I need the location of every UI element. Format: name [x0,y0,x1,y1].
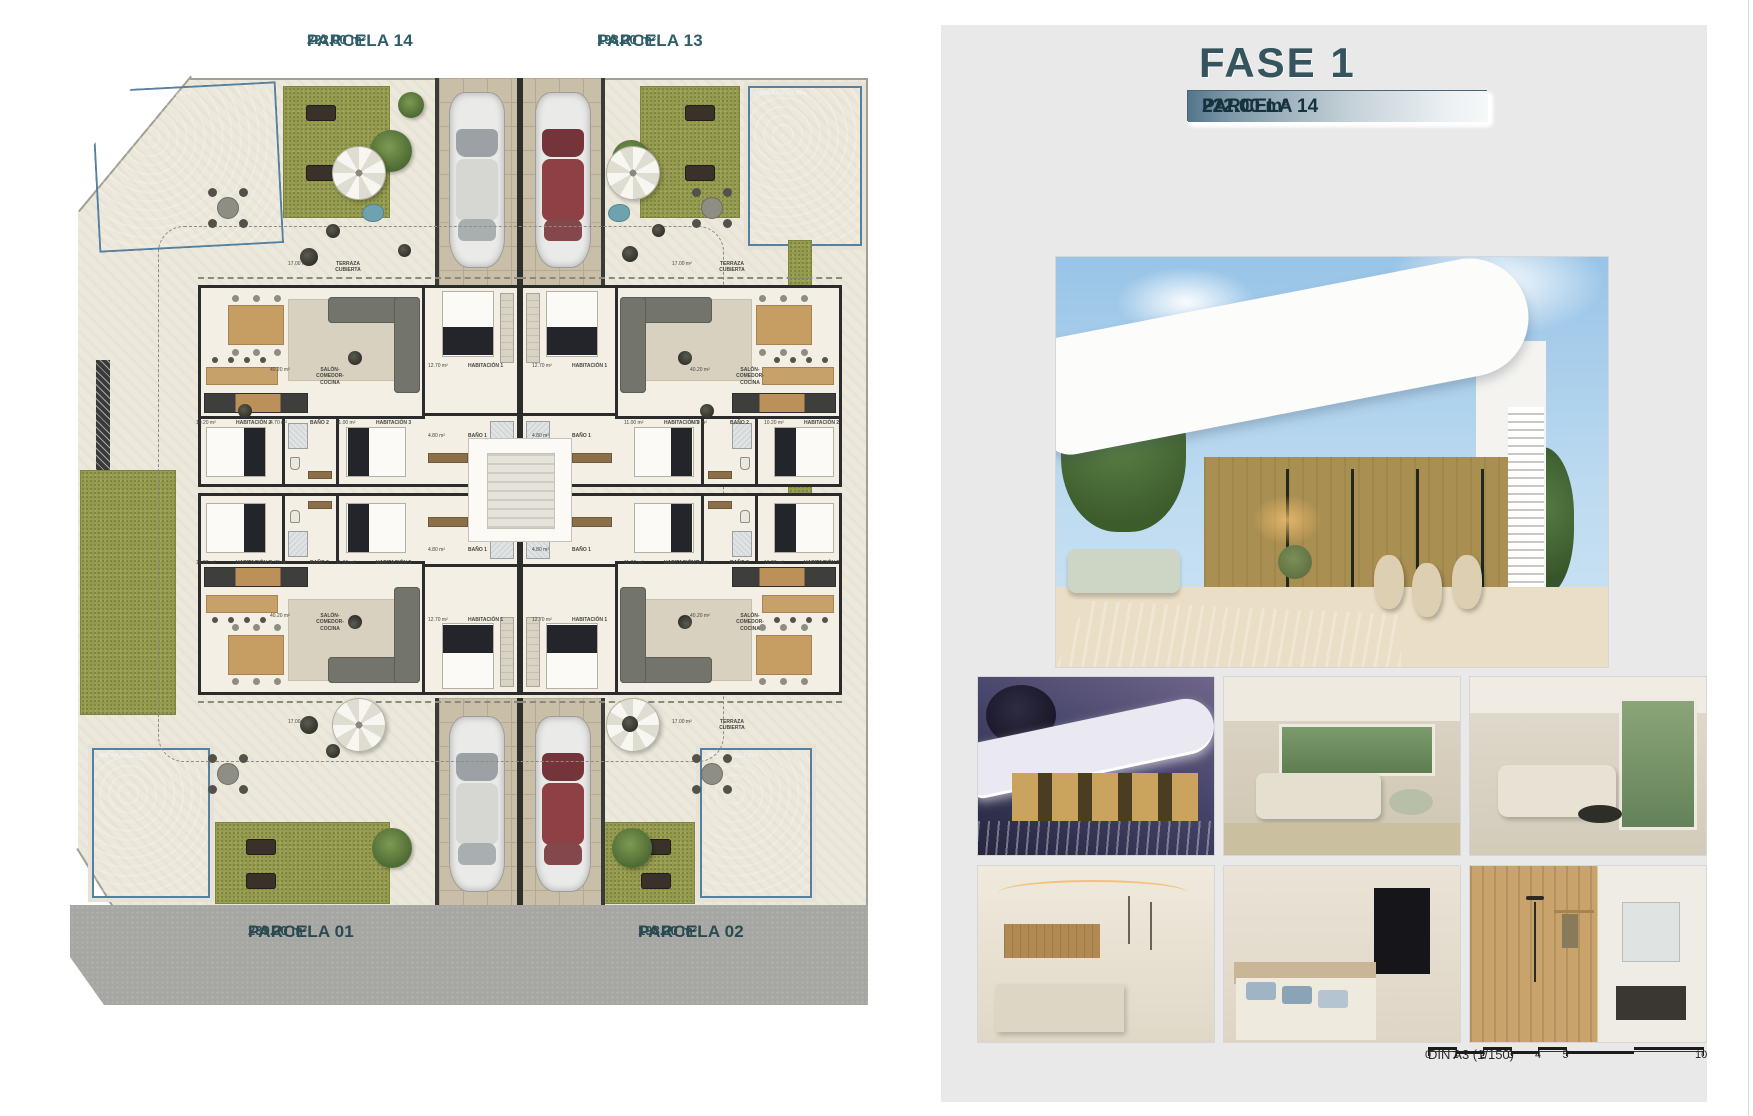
sofa [394,587,420,683]
bed-blanket [443,625,493,653]
plant [678,351,692,365]
dining-table [228,635,284,675]
info-panel: FASE 1 PARCELA 01239.20 m²PARCELA 02198.… [941,25,1707,1102]
sofa [620,587,646,683]
wicker-chair [1374,555,1404,609]
wardrobe [500,617,514,687]
bath2-wc [290,457,300,470]
dining-table [228,305,284,345]
bed-blanket [547,327,597,355]
party-wall [517,287,523,438]
wardrobe [526,293,540,363]
bed-blanket [348,504,369,552]
bath2-vanity [308,471,332,479]
scale-numbers: 01234510 [1428,1049,1703,1063]
wall [422,564,520,567]
brochure-page: PISCINA 4.60 x 2.30 m PISCINA 4.60 x 2.3… [0,0,1753,1116]
plant [326,744,340,758]
bed-blanket [547,625,597,653]
kitchen-bar [762,367,834,385]
bed-blanket [671,504,692,552]
plant [300,716,318,734]
wall [336,419,339,487]
exterior-stairs [1508,407,1544,597]
kitchen-counter [204,567,308,587]
outdoor-dining-set [206,186,250,230]
bath1-vanity [428,453,468,463]
kitchen-counter [732,567,836,587]
dining-chairs [232,678,239,685]
plant [238,404,252,418]
wall [701,419,704,487]
outdoor-dining-set [690,186,734,230]
plant [622,246,638,262]
wall [282,493,285,561]
wall [615,416,839,419]
wall [336,493,339,561]
bed-blanket [775,428,796,476]
bar-stools [822,357,828,363]
garden-sofa [1068,549,1180,593]
bed-blanket [244,428,265,476]
wall [701,493,704,561]
wall [422,413,520,416]
plant [326,224,340,238]
kitchen-bar [762,595,834,613]
bath2-wc [740,457,750,470]
wall [615,564,618,692]
kitchen-counter [732,393,836,413]
bath2-wc [740,510,750,523]
bed-blanket [671,428,692,476]
wall [755,493,758,561]
kitchen-counter [204,393,308,413]
bar-stools [212,357,218,363]
photo-villa-exterior-night [978,677,1214,855]
plant [622,716,638,732]
dwelling-unit-tr: TERRAZA CUBIERTA17.00 m² SALÓN-COMEDOR-C… [520,255,870,490]
parasol [332,146,386,200]
wardrobe [500,293,514,363]
dining-chairs [801,678,808,685]
street [70,905,868,1005]
central-court [468,438,572,542]
bath2-shower [732,423,752,449]
wall [755,419,758,487]
wall [520,413,618,416]
photo-living-room-terrace [1224,677,1460,855]
terrace-dashed-line [520,277,842,279]
bed-blanket [348,428,369,476]
bed-blanket [244,504,265,552]
bath2-vanity [308,501,332,509]
photo-kitchen-dining [978,866,1214,1042]
outdoor-dining-set [206,752,250,796]
bath1-vanity [428,517,468,527]
photo-bathroom-shower [1470,866,1706,1042]
wicker-chair [1452,555,1482,609]
wall [520,564,618,567]
bath2-vanity [708,471,732,479]
bar-stools [822,617,828,623]
phase-title: FASE 1 [1199,39,1356,87]
floor-plan-sheet: PISCINA 4.60 x 2.30 m PISCINA 4.60 x 2.3… [0,0,941,1116]
photo-villa-exterior-day [1056,257,1608,667]
dining-chairs [232,295,239,302]
party-wall [517,542,523,693]
parcel-row[interactable]: PARCELA 14222.00 m² [1188,91,1488,122]
plant [652,224,665,237]
bath1-vanity [572,517,612,527]
sofa [620,297,646,393]
wall [201,416,425,419]
sofa [394,297,420,393]
plant [700,404,714,418]
bath1-vanity [572,453,612,463]
terrace-dashed-line [198,277,520,279]
dining-table [756,305,812,345]
dining-chairs [801,295,808,302]
bed-blanket [775,504,796,552]
photo-living-room-sofa [1470,677,1706,855]
kitchen-bar [206,367,278,385]
wardrobe [526,617,540,687]
bath2-shower [288,423,308,449]
dining-table [756,635,812,675]
water-feature [608,204,630,222]
terrace-dashed-line [520,701,842,703]
photo-bedroom [1224,866,1460,1042]
parcel-row-area: 222.00 m² [1202,96,1289,118]
wall [282,419,285,487]
wicker-chair [1412,563,1442,617]
bar-stools [212,617,218,623]
outdoor-dining-set [690,752,734,796]
bed-blanket [443,327,493,355]
wall [422,288,425,416]
parasol [606,146,660,200]
dwelling-unit-br: TERRAZA CUBIERTA17.00 m² SALÓN-COMEDOR-C… [520,490,870,725]
potted-plant [1278,545,1312,579]
bath2-shower [288,531,308,557]
bath2-shower [732,531,752,557]
water-feature [362,204,384,222]
parasol [332,698,386,752]
plant [348,615,362,629]
plant [348,351,362,365]
kitchen-bar [206,595,278,613]
wall [615,288,618,416]
plant [300,248,318,266]
bath2-wc [290,510,300,523]
page-edge-line [1748,0,1749,1116]
plant [398,244,411,257]
bath2-vanity [708,501,732,509]
wall [422,564,425,692]
